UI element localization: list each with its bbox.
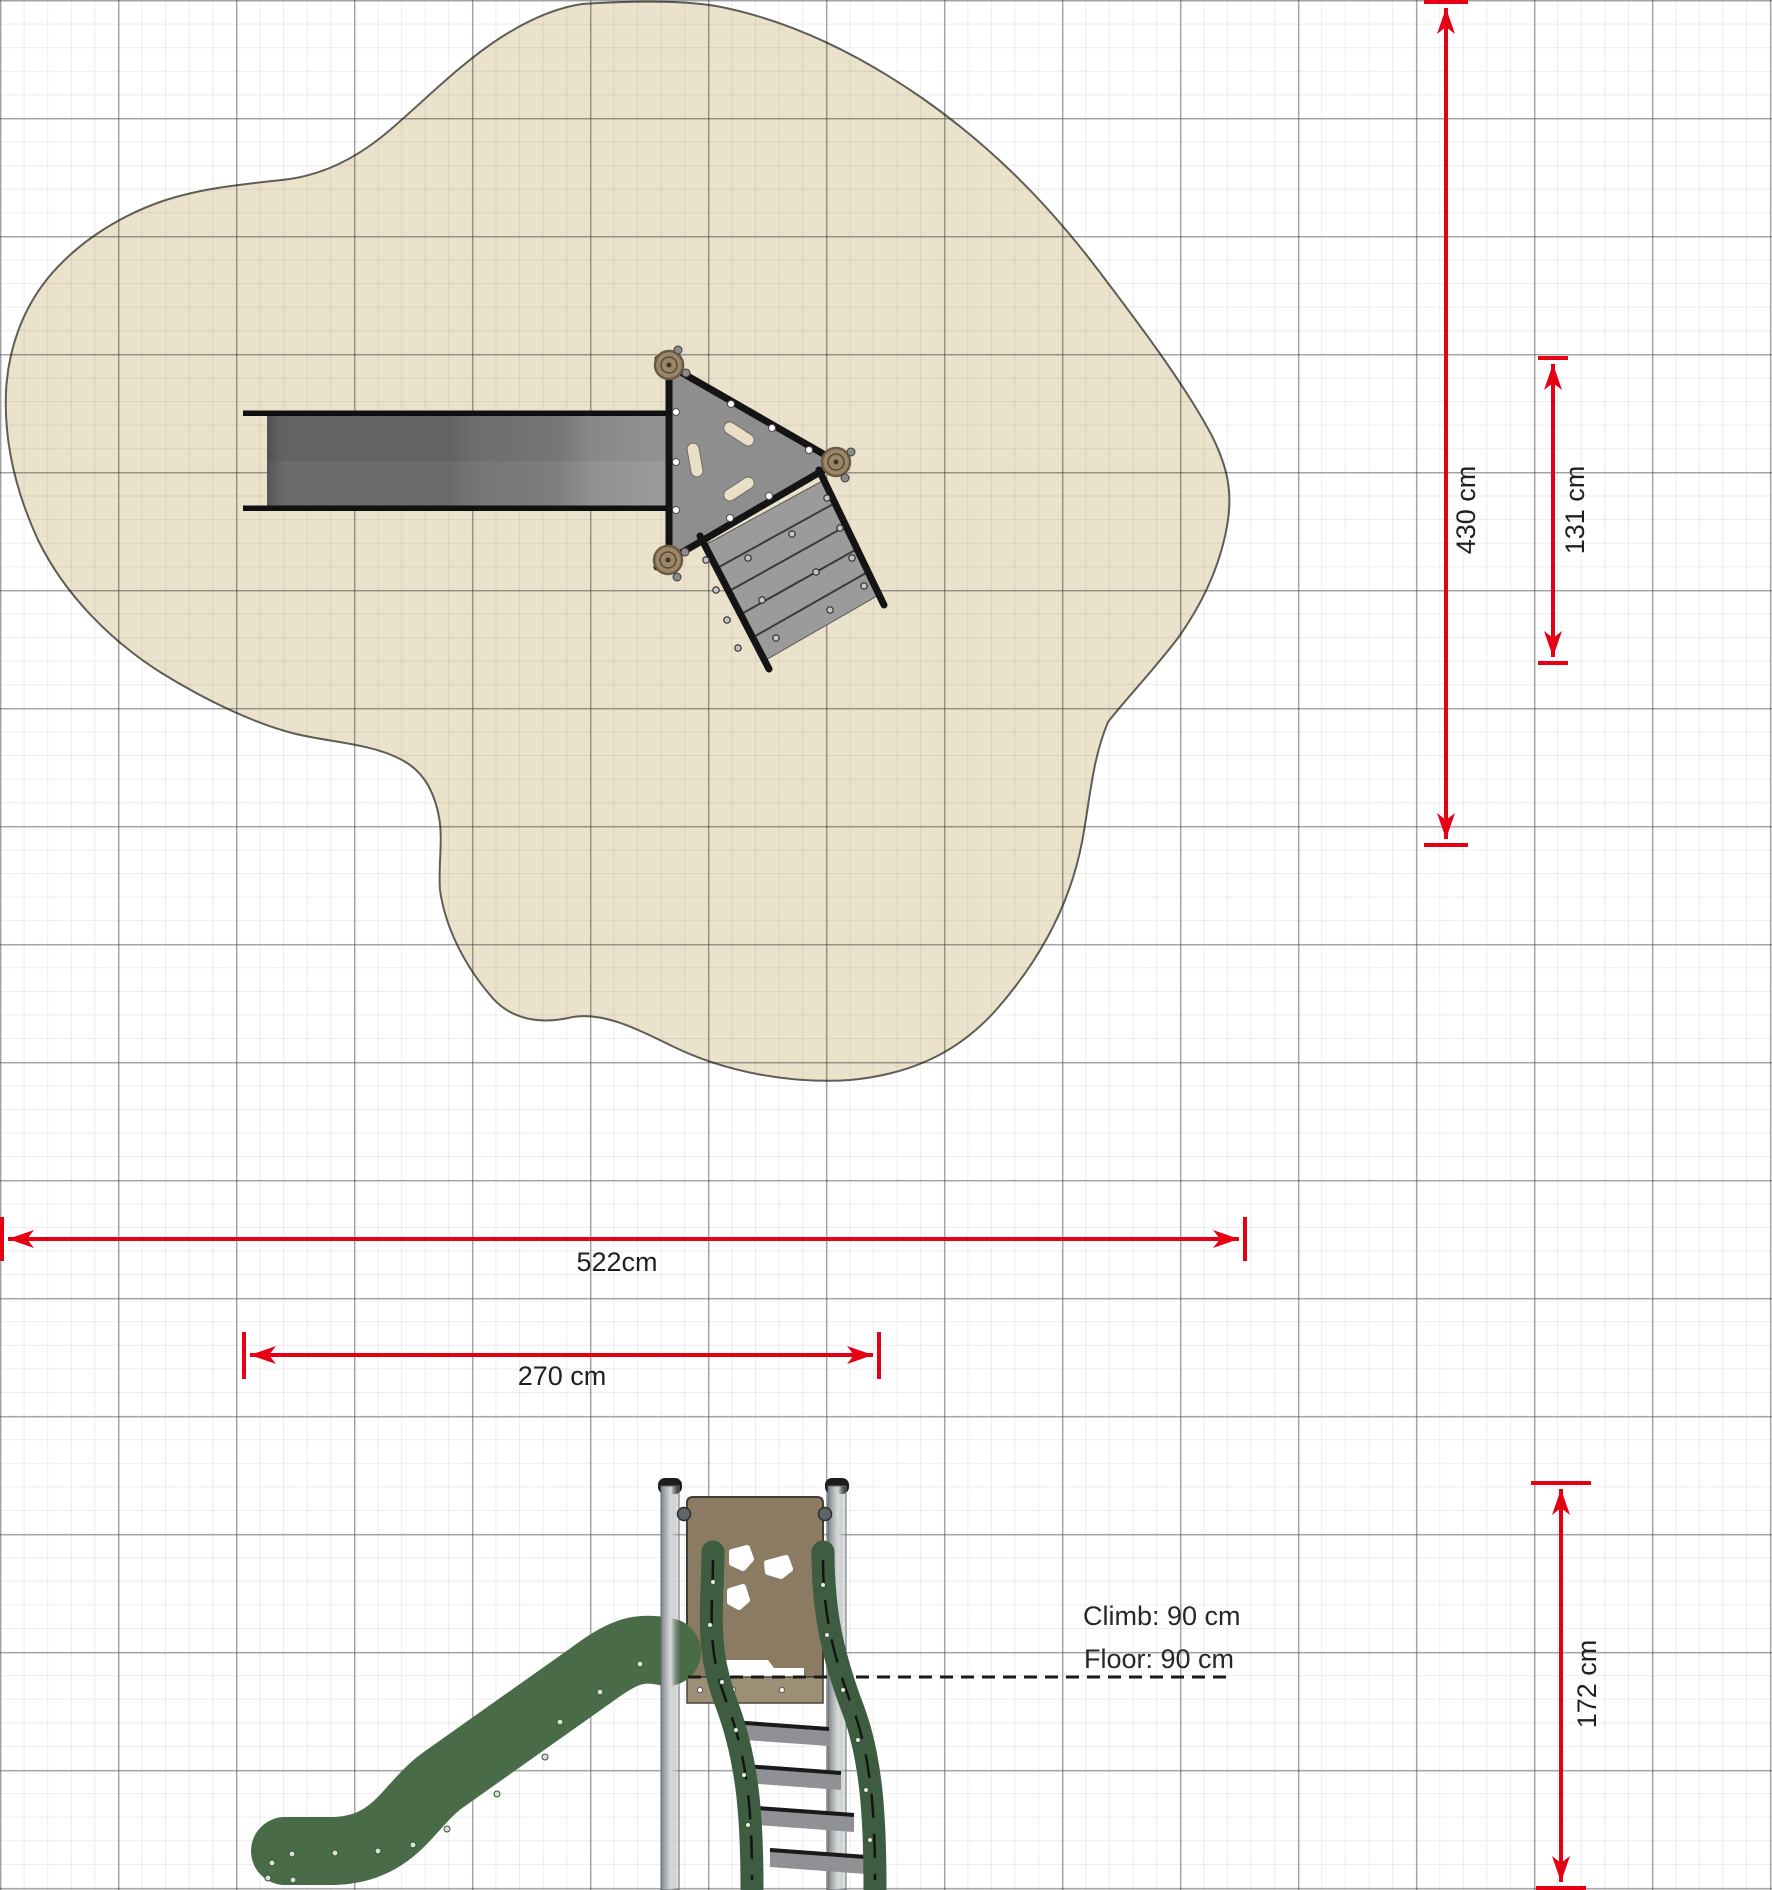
label-floor-height: Floor: 90 cm xyxy=(1084,1644,1234,1674)
label-172cm: 172 cm xyxy=(1572,1640,1602,1729)
elevation-view xyxy=(265,1478,1227,1890)
label-270cm: 270 cm xyxy=(518,1361,607,1391)
plan-view xyxy=(243,346,884,669)
labels: 522cm 270 cm 430 cm 131 cm 172 cm Climb:… xyxy=(518,466,1602,1729)
post-marker xyxy=(654,546,689,581)
slide-rail-bottom xyxy=(243,506,672,512)
post-bolt-left xyxy=(678,1508,691,1521)
slide-rail-top xyxy=(243,411,672,417)
post-bolt-right xyxy=(819,1508,832,1521)
step xyxy=(744,1764,841,1790)
slide-elevation xyxy=(265,1650,667,1883)
step xyxy=(770,1848,866,1874)
label-131cm: 131 cm xyxy=(1560,466,1590,555)
label-climb-height: Climb: 90 cm xyxy=(1083,1601,1241,1631)
slide-band xyxy=(285,1650,667,1851)
playground-plan-page: { "annotations": { "climb": "Climb: 90 c… xyxy=(0,0,1772,1890)
post-left xyxy=(661,1486,679,1890)
dimension-total-depth-430 xyxy=(1424,2,1468,845)
drawing-layer: 522cm 270 cm 430 cm 131 cm 172 cm Climb:… xyxy=(0,0,1772,1890)
post-marker xyxy=(655,346,690,379)
label-522cm: 522cm xyxy=(576,1247,657,1277)
post-marker xyxy=(822,448,855,482)
slide-top-view xyxy=(243,411,672,512)
slide-bed-shade xyxy=(267,416,670,461)
label-430cm: 430 cm xyxy=(1451,466,1481,555)
